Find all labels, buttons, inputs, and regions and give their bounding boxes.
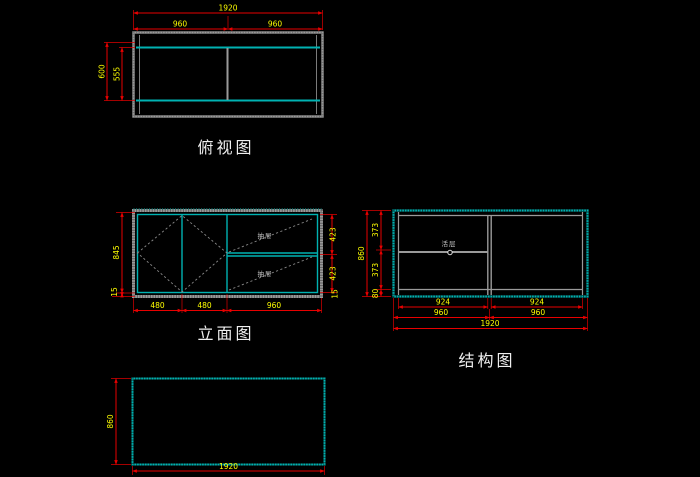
dim-label: 15	[331, 289, 340, 299]
dim-label: 600	[98, 64, 107, 79]
elevation-view: 抽屉 抽屉 845 15 423 423 15 480 480 960 立面图	[110, 209, 340, 343]
dim-label: 1920	[480, 319, 499, 328]
dim-label: 555	[113, 67, 122, 82]
dim-label: 960	[434, 308, 449, 317]
extension-lines	[104, 10, 323, 101]
dim-label: 15	[110, 287, 119, 297]
dim-label: 1920	[219, 462, 238, 471]
panel-view: 860 1920	[106, 379, 325, 476]
dim-label: 80	[371, 289, 380, 299]
cad-canvas: 1920 960 960 600 555 俯视图 抽屉 抽屉 845 15 42…	[0, 0, 700, 477]
dim-label: 423	[329, 227, 338, 242]
dim-label: 960	[531, 308, 546, 317]
dim-label: 480	[197, 301, 212, 310]
dim-label: 924	[436, 298, 451, 307]
dim-label: 1920	[218, 4, 237, 13]
dim-label: 960	[173, 20, 188, 29]
dim-label: 960	[267, 301, 282, 310]
shelf-annotation: 活层	[442, 239, 457, 248]
center-partition	[488, 216, 491, 296]
cad-drawing: 1920 960 960 600 555 俯视图 抽屉 抽屉 845 15 42…	[0, 0, 700, 477]
dim-label: 860	[357, 246, 366, 261]
outline-speckle	[133, 379, 325, 465]
dim-label: 924	[530, 298, 545, 307]
drawer-annotation: 抽屉	[258, 231, 273, 240]
drawer-divider	[227, 253, 318, 256]
view-title: 立面图	[197, 324, 254, 343]
dim-label: 960	[268, 20, 283, 29]
drawer-annotation: 抽屉	[258, 269, 273, 278]
dim-label: 845	[112, 245, 121, 260]
dim-label: 860	[106, 414, 115, 429]
view-title: 结构图	[458, 351, 515, 370]
view-title: 俯视图	[197, 138, 254, 157]
shelf-pin-marker	[448, 250, 452, 254]
dim-label: 480	[150, 301, 165, 310]
extension-lines	[362, 211, 588, 332]
dim-label: 373	[371, 223, 380, 238]
extension-lines	[111, 379, 325, 476]
panel-hatched	[133, 379, 325, 465]
dim-label: 373	[371, 263, 380, 278]
door-dividers	[182, 215, 227, 292]
drawer-leader-dashes	[229, 219, 312, 290]
structure-view: 活层 860 373 373 80 924 924 960 960 1920 结…	[357, 211, 588, 371]
dim-label: 423	[329, 266, 338, 281]
top-view: 1920 960 960 600 555 俯视图	[98, 4, 323, 158]
